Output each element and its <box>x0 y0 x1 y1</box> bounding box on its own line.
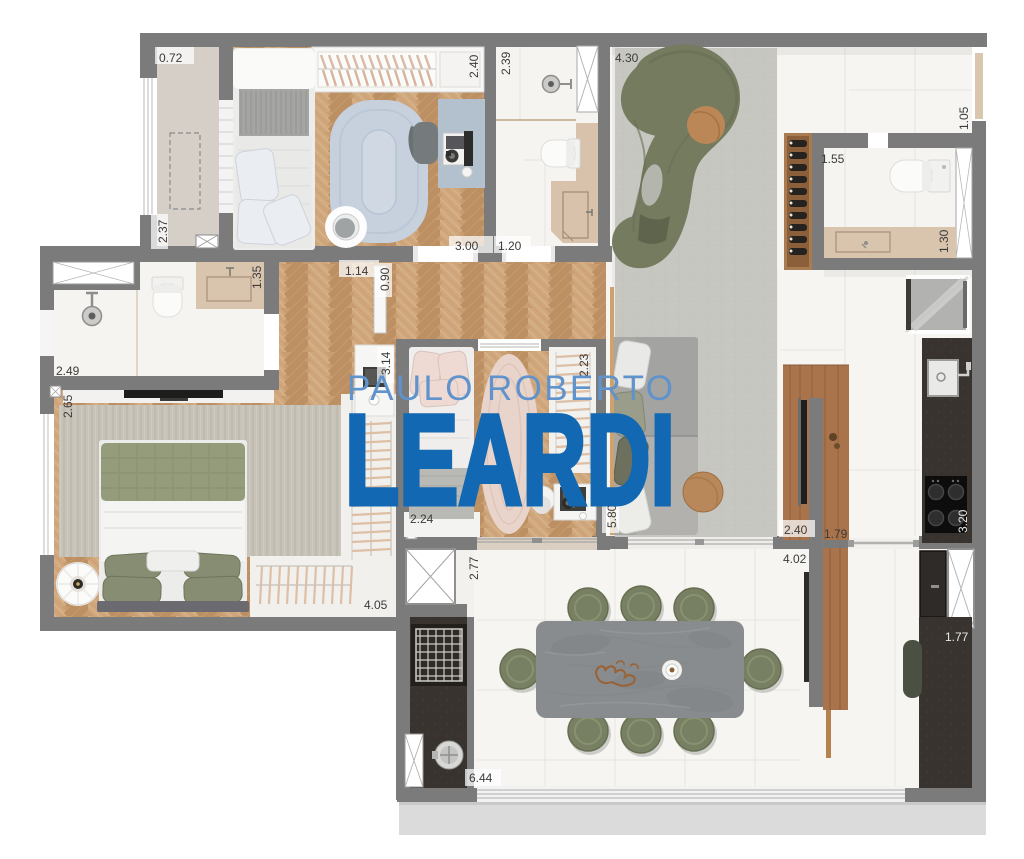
svg-text:2.37: 2.37 <box>156 219 170 243</box>
svg-text:1.55: 1.55 <box>821 152 845 166</box>
svg-text:1.77: 1.77 <box>945 630 969 644</box>
svg-text:1.20: 1.20 <box>498 239 522 253</box>
svg-text:2.40: 2.40 <box>784 523 808 537</box>
svg-text:2.40: 2.40 <box>467 54 481 78</box>
svg-text:2.39: 2.39 <box>499 51 513 75</box>
svg-text:2.49: 2.49 <box>56 364 80 378</box>
svg-text:4.05: 4.05 <box>364 598 388 612</box>
svg-text:3.20: 3.20 <box>956 509 970 533</box>
svg-text:2.77: 2.77 <box>467 556 481 580</box>
svg-text:1.14: 1.14 <box>345 264 369 278</box>
svg-text:0.90: 0.90 <box>378 267 392 291</box>
svg-text:LEARDI: LEARDI <box>345 389 675 532</box>
svg-text:4.30: 4.30 <box>615 51 639 65</box>
svg-text:0.72: 0.72 <box>159 51 183 65</box>
svg-text:6.44: 6.44 <box>469 771 493 785</box>
svg-text:3.00: 3.00 <box>455 239 479 253</box>
svg-text:1.30: 1.30 <box>937 229 951 253</box>
svg-text:4.02: 4.02 <box>783 552 807 566</box>
svg-text:2.65: 2.65 <box>61 394 75 418</box>
svg-text:1.05: 1.05 <box>957 106 971 130</box>
svg-text:1.79: 1.79 <box>824 527 848 541</box>
svg-text:1.35: 1.35 <box>250 265 264 289</box>
